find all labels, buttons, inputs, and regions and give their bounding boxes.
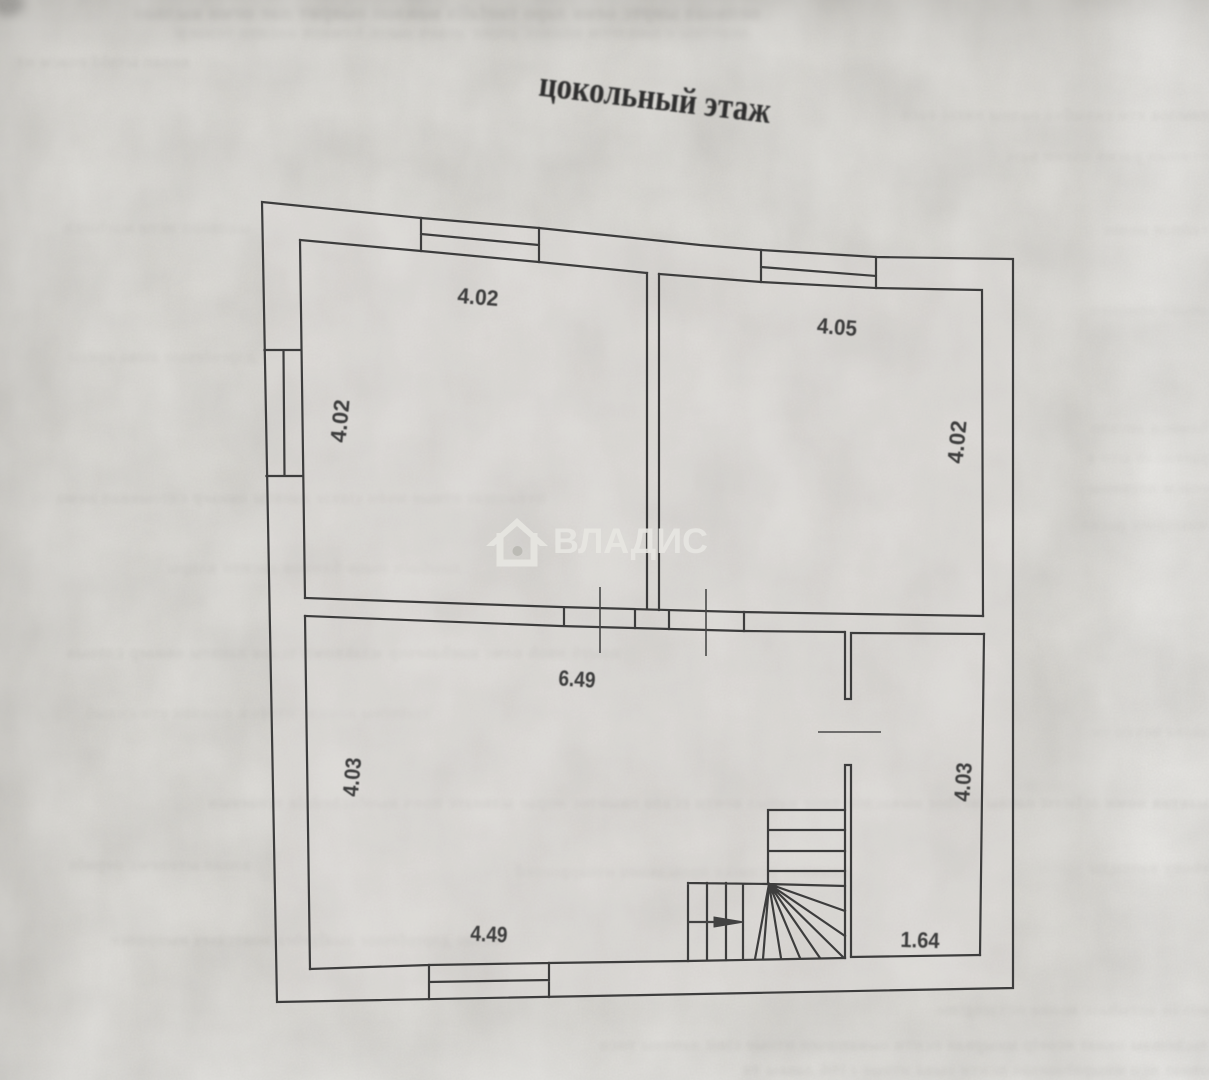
svg-text:4.02: 4.02: [942, 419, 971, 464]
svg-text:4.49: 4.49: [470, 921, 508, 948]
svg-text:6.49: 6.49: [558, 665, 596, 692]
svg-text:4.05: 4.05: [816, 313, 858, 341]
svg-text:4.03: 4.03: [949, 762, 977, 803]
svg-text:4.02: 4.02: [325, 398, 354, 443]
svg-text:ВЛАДИС: ВЛАДИС: [553, 522, 708, 561]
svg-text:1.64: 1.64: [900, 927, 941, 953]
svg-text:4.02: 4.02: [457, 283, 500, 311]
svg-text:4.03: 4.03: [338, 756, 366, 797]
